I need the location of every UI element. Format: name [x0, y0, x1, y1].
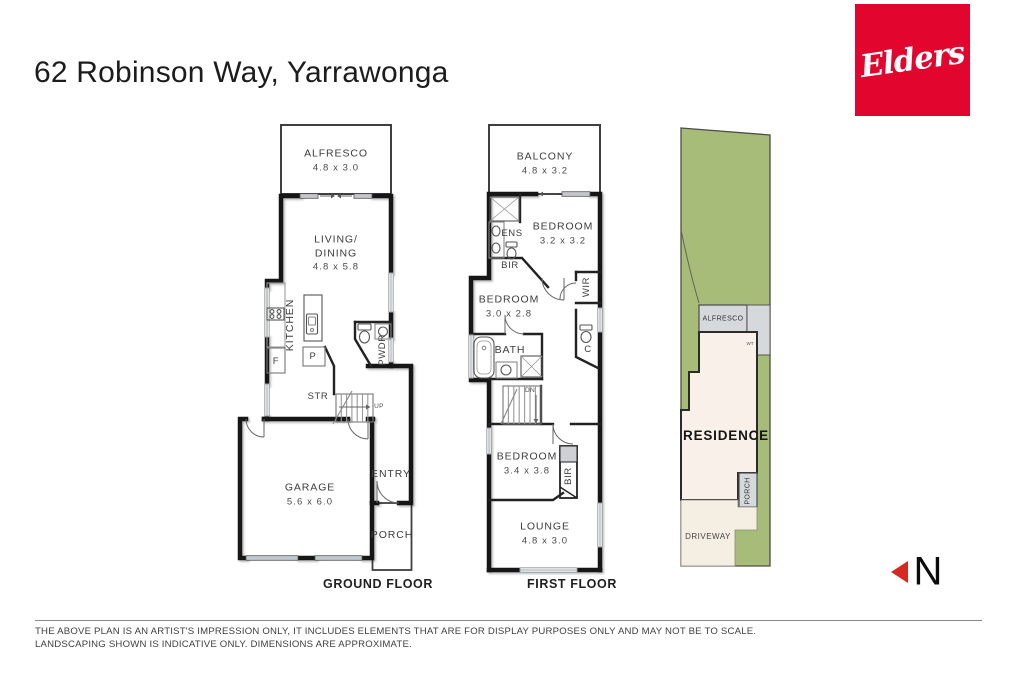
label-robe2: BIR	[563, 467, 575, 485]
room-label-lounge: LOUNGE 4.8 x 3.0	[520, 521, 570, 548]
room-dims: 3.0 x 2.8	[479, 308, 540, 320]
balcony-sliding-door	[539, 192, 590, 197]
label-powder-room: PWDR	[377, 334, 389, 365]
room-label-garage: GARAGE 5.6 x 6.0	[285, 482, 335, 509]
toilet-icon	[358, 324, 371, 343]
site-label-alfresco: ALFRESCO	[703, 314, 744, 323]
room-name: BEDROOM	[479, 294, 540, 308]
label-porch: PORCH	[371, 529, 413, 543]
room-dims: 4.8 x 5.8	[313, 262, 359, 274]
room-dims: 4.8 x 3.2	[517, 165, 573, 177]
disclaimer: THE ABOVE PLAN IS AN ARTIST'S IMPRESSION…	[35, 626, 935, 652]
ensuite-toilet-icon	[506, 242, 517, 259]
label-robe1: BIR	[501, 260, 519, 272]
ff-exterior-walls	[471, 194, 600, 570]
room-label-kitchen: KITCHEN	[284, 299, 298, 351]
footer-divider	[35, 620, 982, 621]
kitchen-bench	[267, 283, 285, 347]
label-bath: BATH	[495, 344, 526, 358]
island-bench	[304, 295, 322, 341]
label-stairs-down: DN	[525, 387, 535, 395]
bath-shower-icon	[521, 356, 542, 377]
room-label-bedroom3: BEDROOM 3.4 x 3.8	[497, 451, 558, 478]
label-walk-in-robe: WIR	[581, 277, 593, 297]
north-letter: N	[914, 550, 943, 595]
room-dims: 4.8 x 3.0	[520, 535, 570, 547]
site-label-residence: RESIDENCE	[683, 427, 769, 445]
room-label-living-dining: LIVING/ DINING 4.8 x 5.8	[313, 234, 359, 275]
disclaimer-line2: LANDSCAPING SHOWN IS INDICATIVE ONLY. DI…	[35, 639, 935, 652]
site-label-driveway: DRIVEWAY	[685, 532, 731, 542]
bath-vanity	[496, 362, 517, 378]
room-label-bedroom1: BEDROOM 3.2 x 3.2	[533, 221, 594, 248]
room-name: DINING	[313, 247, 359, 261]
site-label-water-tank: WT	[747, 341, 754, 347]
room-dims: 3.4 x 3.8	[497, 465, 558, 477]
room-label-alfresco: ALFRESCO 4.8 x 3.0	[304, 148, 368, 175]
floor-plan-page: 62 Robinson Way, Yarrawonga Elders ALFRE…	[0, 0, 1013, 675]
label-ensuite: ENS	[501, 228, 522, 240]
room-name: BEDROOM	[533, 221, 594, 235]
room-name: BALCONY	[517, 151, 573, 165]
room-name: LIVING/	[313, 234, 359, 248]
wc-toilet-icon	[580, 325, 592, 343]
room-name: LOUNGE	[520, 521, 570, 535]
site-plan	[681, 128, 770, 566]
room-name: BEDROOM	[497, 451, 558, 465]
label-pantry: P	[310, 351, 317, 363]
north-arrow-icon	[891, 561, 908, 583]
page-title: 62 Robinson Way, Yarrawonga	[34, 56, 449, 90]
site-label-porch: PORCH	[743, 477, 752, 504]
label-fridge: F	[273, 356, 279, 368]
label-entry: ENTRY	[371, 468, 411, 482]
room-dims: 4.8 x 3.0	[304, 162, 368, 174]
first-floor-plan	[469, 125, 602, 572]
label-cupboard: C	[584, 344, 591, 356]
shower-icon	[490, 197, 519, 221]
room-label-bedroom2: BEDROOM 3.0 x 2.8	[479, 294, 540, 321]
ground-floor-caption: GROUND FLOOR	[323, 576, 433, 592]
first-floor-caption: FIRST FLOOR	[527, 576, 617, 592]
room-name: ALFRESCO	[304, 148, 368, 162]
label-stairs-up: UP	[374, 403, 384, 411]
disclaimer-line1: THE ABOVE PLAN IS AN ARTIST'S IMPRESSION…	[35, 626, 935, 639]
stairs-down	[501, 386, 541, 424]
room-dims: 3.2 x 3.2	[533, 235, 594, 247]
room-name: GARAGE	[285, 482, 335, 496]
bathtub-icon	[474, 337, 494, 378]
room-label-balcony: BALCONY 4.8 x 3.2	[517, 151, 573, 178]
label-storage: STR	[308, 391, 329, 403]
elders-logo-text: Elders	[858, 35, 967, 85]
room-dims: 5.6 x 6.0	[285, 496, 335, 508]
elders-logo: Elders	[855, 4, 970, 116]
